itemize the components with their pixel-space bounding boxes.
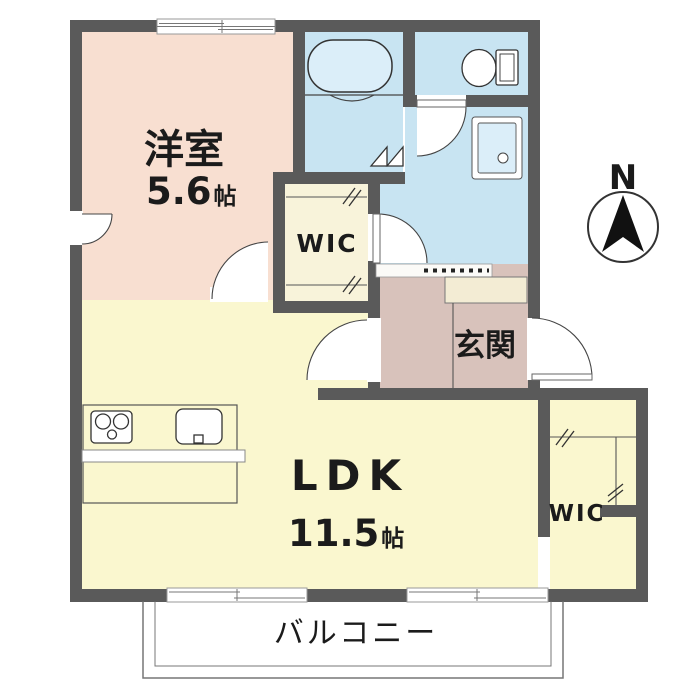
toilet-icon: [462, 50, 518, 87]
sliding-window-balcony-right: [407, 588, 548, 602]
wic-upper-label: WIC: [296, 229, 357, 258]
compass-north-label: N: [609, 158, 637, 198]
wic-lower-floor: [550, 400, 636, 589]
door-leaf: [417, 100, 466, 107]
stove-icon: [91, 411, 132, 443]
entrance-door-gap: [527, 318, 541, 380]
sink-icon: [176, 409, 222, 444]
compass: N: [588, 158, 658, 262]
floor-plan-page: N 洋室 5.6帖 WIC 玄関 LDK 11.5帖 WIC バルコニー: [0, 0, 700, 700]
ldk-floor-left: [82, 300, 273, 589]
floor-plan: N 洋室 5.6帖 WIC 玄関 LDK 11.5帖 WIC バルコニー: [0, 0, 700, 700]
entrance-label: 玄関: [454, 328, 516, 364]
sliding-window-balcony-left: [167, 588, 307, 602]
wic-lower-label: WIC: [549, 501, 606, 527]
west-door-gap: [69, 211, 83, 245]
entrance-step: [376, 264, 492, 277]
ldk-door-gap: [367, 318, 381, 382]
ldk-label: LDK: [291, 451, 409, 500]
door-leaf: [373, 214, 380, 263]
door-leaf: [532, 374, 592, 380]
shoe-cabinet: [445, 277, 527, 303]
counter-bar: [82, 450, 245, 462]
western-room-label: 洋室: [144, 127, 224, 173]
balcony-label: バルコニー: [274, 616, 438, 651]
sliding-window-top: [157, 19, 275, 34]
laundry-pan-icon: [472, 117, 522, 179]
